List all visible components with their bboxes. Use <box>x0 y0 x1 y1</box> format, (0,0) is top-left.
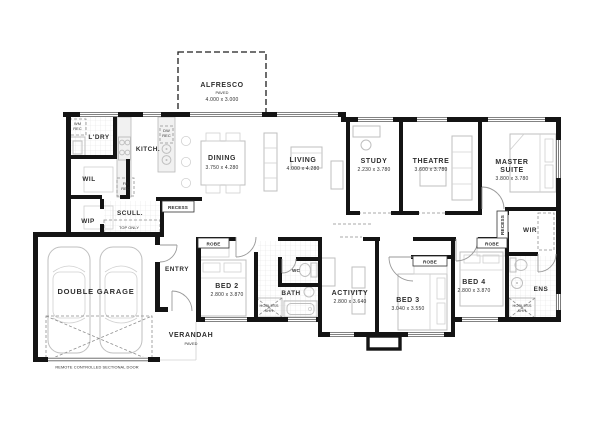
kitchen-label: KITCH. <box>136 146 160 153</box>
floor-plan-page: ALFRESCO PAVED 4.000 x 3.000 L'DRY KITCH… <box>0 0 600 424</box>
study-furniture <box>353 126 380 150</box>
bath-label: BATH <box>281 290 300 297</box>
robe-label-bed4: ROBE <box>485 242 499 247</box>
verandah-label: VERANDAH <box>169 332 213 339</box>
wir-label: WIR <box>523 227 537 234</box>
bed2-furniture <box>199 248 246 316</box>
master-label-1: MASTER <box>495 159 528 166</box>
alfresco-sub: PAVED <box>215 90 228 95</box>
robe-label-bed2: ROBE <box>206 242 220 247</box>
bed4-dims: 2.800 x 3.870 <box>458 288 491 294</box>
activity-label: ACTIVITY <box>332 290 369 297</box>
living-dims: 4.000 x 4.280 <box>287 166 320 172</box>
window <box>556 140 561 178</box>
recess-label-master: RECESS <box>500 215 505 235</box>
wc-label: WC <box>292 268 301 273</box>
dining-furniture <box>201 133 245 193</box>
window <box>143 112 161 117</box>
window <box>330 332 354 337</box>
dining-label: DINING <box>208 155 236 162</box>
window <box>205 317 247 322</box>
window <box>277 112 338 117</box>
wip-label: WIP <box>81 218 95 225</box>
robe-label-bed3: ROBE <box>423 260 437 265</box>
bed2-label: BED 2 <box>215 283 239 290</box>
activity-dims: 2.800 x 3.640 <box>334 299 367 305</box>
opening-dashes <box>333 213 447 237</box>
study-label: STUDY <box>361 158 388 165</box>
alfresco-label: ALFRESCO <box>200 82 243 89</box>
window <box>488 117 545 122</box>
window <box>80 112 118 117</box>
window <box>556 294 561 310</box>
garage-label: DOUBLE GARAGE <box>57 287 134 296</box>
hobless-shr-label-bath-2: SHR <box>265 308 274 313</box>
bed4-door <box>456 239 478 261</box>
front-entry-door <box>172 291 192 311</box>
top-only-label: TOP ONLY <box>119 225 139 230</box>
ensuite-label: ENS <box>534 286 549 293</box>
portico-pier <box>368 336 400 349</box>
garage-sectional-door <box>48 357 148 362</box>
entry-label: ENTRY <box>165 266 189 273</box>
alfresco-dims: 4.000 x 3.000 <box>206 97 239 103</box>
bed2-door <box>236 237 256 257</box>
window <box>358 117 393 122</box>
bed4-furniture <box>460 248 505 306</box>
garage-door-note: REMOTE CONTROLLED SECTIONAL DOOR <box>55 365 138 370</box>
wm-rec-label-2: REC <box>73 126 82 131</box>
theatre-dims: 3.600 x 3.780 <box>415 167 448 173</box>
dw-rec-label-2: REC <box>162 133 171 138</box>
bed4-label: BED 4 <box>462 279 486 286</box>
window <box>462 317 498 322</box>
bed2-dims: 2.800 x 3.870 <box>211 292 244 298</box>
sliding-door <box>190 112 262 117</box>
master-door <box>482 187 504 209</box>
floor-plan-drawing: ALFRESCO PAVED 4.000 x 3.000 L'DRY KITCH… <box>0 0 600 424</box>
living-label: LIVING <box>290 157 317 164</box>
bed3-dims: 3.040 x 3.550 <box>392 306 425 312</box>
window <box>288 317 316 322</box>
hobless-shr-label-ens-2: SHR <box>518 308 527 313</box>
bed3-label: BED 3 <box>396 297 420 304</box>
master-label-2: SUITE <box>500 167 524 174</box>
window <box>408 332 444 337</box>
garage-entry-door <box>160 245 177 262</box>
scullery-label: SCULL. <box>117 210 143 217</box>
window <box>417 117 447 122</box>
activity-furniture <box>321 258 365 314</box>
recess-label-hall: RECESS <box>168 205 188 210</box>
bed3-door <box>389 257 413 281</box>
garage-cars <box>46 247 152 361</box>
verandah-sub: PAVED <box>184 341 197 346</box>
wil-label: WIL <box>82 176 95 183</box>
study-dims: 2.230 x 3.780 <box>358 167 391 173</box>
laundry-label: L'DRY <box>88 134 109 141</box>
theatre-label: THEATRE <box>413 158 450 165</box>
wir-shelves <box>538 213 554 250</box>
dining-dims: 3.750 x 4.280 <box>206 165 239 171</box>
fr-rec-label-2: REC <box>121 186 130 191</box>
master-dims: 3.800 x 3.780 <box>496 176 529 182</box>
